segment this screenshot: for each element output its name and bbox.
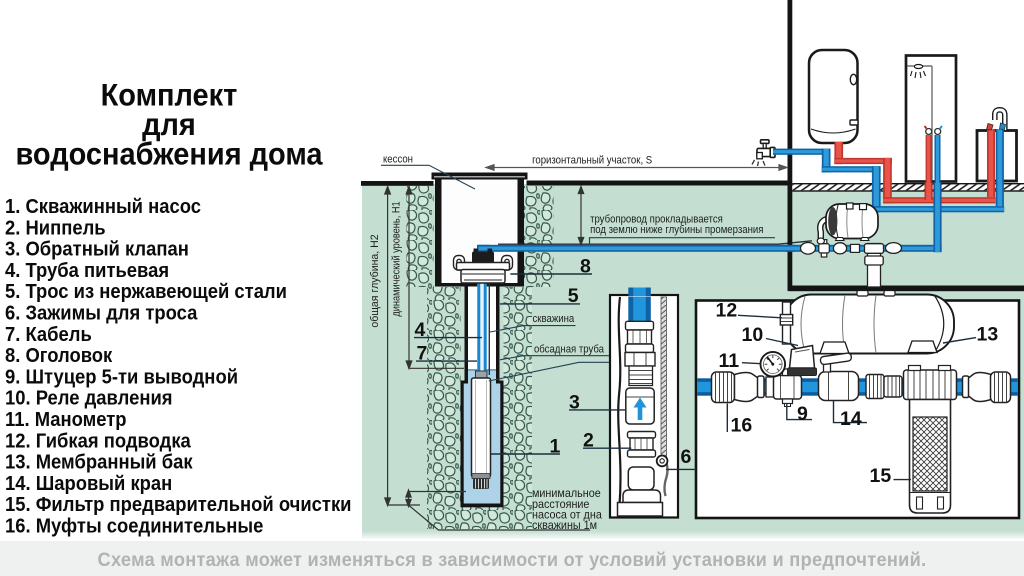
svg-text:общая глубина, Н2: общая глубина, Н2 — [369, 234, 381, 327]
svg-text:10: 10 — [742, 324, 764, 346]
svg-text:13: 13 — [977, 323, 999, 345]
svg-text:10. Реле давления: 10. Реле давления — [5, 387, 173, 410]
svg-text:7: 7 — [417, 342, 428, 364]
svg-text:3. Обратный клапан: 3. Обратный клапан — [5, 238, 189, 261]
svg-text:8: 8 — [580, 255, 591, 277]
svg-text:16: 16 — [731, 414, 753, 436]
svg-text:1. Скважинный насос: 1. Скважинный насос — [5, 195, 201, 218]
svg-text:2: 2 — [583, 430, 594, 452]
svg-text:под землю ниже глубины про: под землю ниже глубины промерзания — [590, 223, 763, 236]
svg-text:16. Муфты соединительные: 16. Муфты соединительные — [5, 515, 264, 538]
svg-text:12. Гибкая подводка: 12. Гибкая подводка — [5, 430, 191, 453]
svg-text:3: 3 — [569, 391, 580, 413]
svg-text:4: 4 — [415, 319, 426, 341]
svg-text:6. Зажимы для троса: 6. Зажимы для троса — [5, 302, 198, 325]
svg-text:15. Фильтр предварительной очи: 15. Фильтр предварительной очистки — [5, 493, 352, 516]
svg-text:2. Ниппель: 2. Ниппель — [5, 217, 106, 240]
svg-text:водоснабжения дома: водоснабжения дома — [15, 137, 323, 171]
svg-text:Схема монтажа может изменяться: Схема монтажа может изменяться в зависим… — [98, 549, 927, 571]
svg-text:7. Кабель: 7. Кабель — [5, 323, 92, 346]
svg-text:15: 15 — [870, 465, 892, 487]
svg-text:5. Трос из нержавеющей стали: 5. Трос из нержавеющей стали — [5, 280, 287, 303]
svg-text:12: 12 — [716, 299, 738, 321]
svg-text:кессон: кессон — [383, 154, 413, 166]
svg-text:5: 5 — [568, 285, 579, 307]
svg-text:1: 1 — [550, 436, 561, 458]
svg-text:11: 11 — [719, 350, 740, 372]
svg-text:8. Оголовок: 8. Оголовок — [5, 344, 113, 367]
svg-text:14. Шаровый кран: 14. Шаровый кран — [5, 472, 172, 495]
svg-text:11. Манометр: 11. Манометр — [5, 408, 127, 431]
svg-text:14: 14 — [840, 408, 862, 430]
svg-text:9. Штуцер 5-ти выводной: 9. Штуцер 5-ти выводной — [5, 366, 238, 389]
svg-text:6: 6 — [681, 446, 692, 468]
svg-text:динамический уровень, Н1: динамический уровень, Н1 — [391, 201, 403, 317]
svg-text:скважины 1м: скважины 1м — [532, 520, 597, 533]
svg-text:обсадная труба: обсадная труба — [534, 343, 604, 356]
svg-text:9: 9 — [797, 403, 808, 425]
svg-text:4. Труба питьевая: 4. Труба питьевая — [5, 259, 169, 282]
svg-text:скважина: скважина — [533, 313, 575, 325]
svg-text:горизонтальный участок, S: горизонтальный участок, S — [532, 155, 652, 167]
svg-text:13. Мембранный бак: 13. Мембранный бак — [5, 451, 193, 474]
